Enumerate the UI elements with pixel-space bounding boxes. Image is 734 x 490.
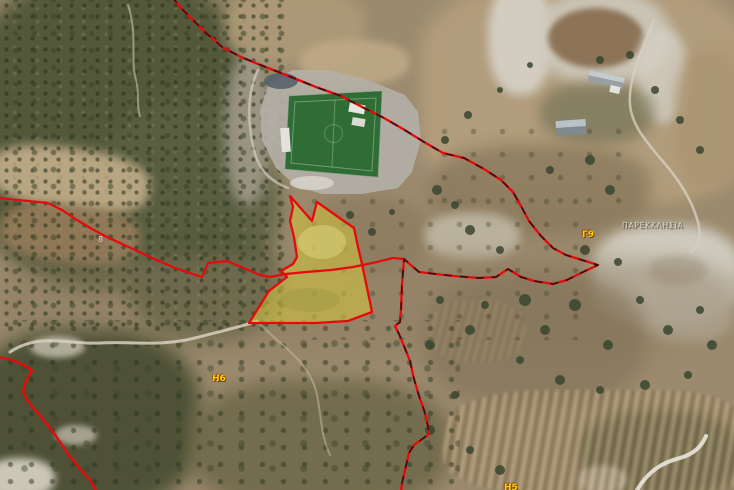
parcel-number-label: 8 xyxy=(98,236,103,244)
dirt-road xyxy=(636,436,706,490)
block-label-g9: Γ9 xyxy=(582,231,594,240)
boundary-line-main-dashes xyxy=(172,0,598,490)
dirt-road xyxy=(10,321,257,352)
block-label-h6: Η6 xyxy=(212,375,226,384)
dirt-road xyxy=(258,322,330,455)
buildings xyxy=(556,70,625,136)
dirt-road xyxy=(630,20,700,252)
block-label-h5: Η5 xyxy=(504,484,518,490)
map-canvas[interactable]: ΠΑΡΕΚΚΛΗΣΙΑ Γ9 Η6 Η5 8 xyxy=(0,0,734,490)
stadium-grounds xyxy=(260,70,421,194)
stand-building xyxy=(280,128,291,153)
parcel-soil-patch xyxy=(280,288,340,312)
dirt-road xyxy=(128,5,140,116)
boundary-line-main xyxy=(172,0,598,490)
parcel-soil-patch xyxy=(298,225,346,259)
stadium-forecourt xyxy=(290,176,334,190)
village-name-label: ΠΑΡΕΚΚΛΗΣΙΑ xyxy=(622,222,684,230)
boundary-line-southwest xyxy=(0,357,97,490)
map-overlay xyxy=(0,0,734,490)
stadium-shade-area xyxy=(264,73,298,89)
